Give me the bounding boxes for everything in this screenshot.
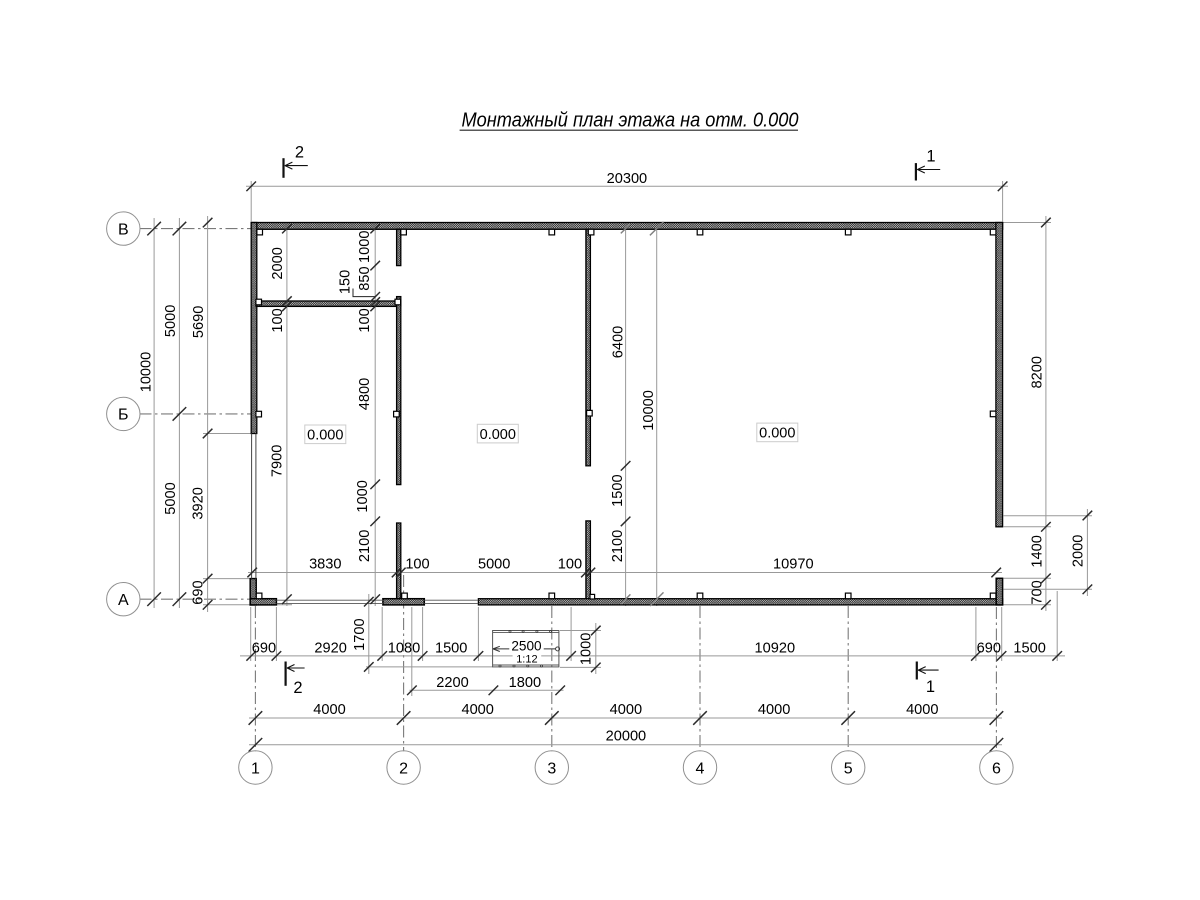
svg-text:5: 5	[844, 760, 853, 777]
svg-text:1:12: 1:12	[516, 653, 537, 665]
svg-text:1500: 1500	[610, 474, 626, 506]
svg-text:10970: 10970	[773, 556, 814, 572]
svg-text:5000: 5000	[163, 305, 179, 337]
svg-text:3830: 3830	[309, 556, 341, 572]
svg-text:1000: 1000	[357, 230, 373, 262]
svg-text:1000: 1000	[579, 633, 595, 665]
svg-text:690: 690	[252, 640, 276, 656]
svg-text:2000: 2000	[270, 247, 286, 279]
svg-text:3920: 3920	[190, 487, 206, 519]
svg-text:4000: 4000	[906, 702, 938, 718]
svg-text:2000: 2000	[1071, 535, 1087, 567]
svg-text:А: А	[118, 592, 129, 609]
svg-text:1000: 1000	[355, 480, 371, 512]
svg-text:4000: 4000	[610, 702, 642, 718]
svg-text:2: 2	[399, 760, 408, 777]
svg-text:10000: 10000	[641, 390, 657, 431]
svg-text:1080: 1080	[388, 640, 420, 656]
svg-text:8200: 8200	[1030, 356, 1046, 388]
svg-text:1800: 1800	[509, 675, 541, 691]
svg-text:3: 3	[547, 760, 556, 777]
svg-text:4000: 4000	[758, 702, 790, 718]
svg-text:Б: Б	[118, 407, 129, 424]
svg-text:1: 1	[926, 147, 935, 165]
svg-text:7900: 7900	[269, 445, 285, 477]
svg-text:2920: 2920	[314, 640, 346, 656]
svg-text:100: 100	[405, 556, 429, 572]
svg-text:В: В	[118, 221, 129, 238]
svg-text:5000: 5000	[163, 482, 179, 514]
svg-text:5000: 5000	[478, 556, 510, 572]
svg-text:20000: 20000	[606, 728, 647, 744]
svg-text:1: 1	[251, 760, 260, 777]
svg-text:20300: 20300	[607, 171, 648, 187]
svg-text:2100: 2100	[610, 530, 626, 562]
svg-text:700: 700	[1029, 580, 1045, 604]
svg-text:100: 100	[357, 308, 373, 332]
svg-text:0.000: 0.000	[480, 427, 516, 443]
svg-text:2: 2	[293, 679, 302, 697]
svg-text:850: 850	[357, 266, 373, 290]
svg-text:2100: 2100	[357, 530, 373, 562]
svg-text:0.000: 0.000	[759, 426, 795, 442]
svg-text:2500: 2500	[511, 638, 542, 653]
svg-text:4800: 4800	[357, 378, 373, 410]
svg-text:1500: 1500	[1013, 640, 1045, 656]
svg-text:150: 150	[338, 270, 354, 294]
svg-text:100: 100	[558, 556, 582, 572]
svg-text:100: 100	[270, 308, 286, 332]
svg-text:10920: 10920	[755, 640, 796, 656]
svg-text:4: 4	[696, 760, 705, 777]
svg-text:1400: 1400	[1029, 535, 1045, 567]
svg-text:10000: 10000	[138, 352, 154, 393]
svg-text:1700: 1700	[352, 618, 368, 650]
svg-text:4000: 4000	[461, 702, 493, 718]
svg-text:1: 1	[926, 678, 935, 696]
svg-text:1500: 1500	[435, 640, 467, 656]
svg-text:4000: 4000	[313, 702, 345, 718]
svg-text:5690: 5690	[191, 306, 207, 338]
svg-text:2200: 2200	[436, 675, 468, 691]
svg-text:690: 690	[190, 580, 206, 604]
svg-text:Монтажный план этажа на отм. 0: Монтажный план этажа на отм. 0.000	[462, 110, 799, 132]
svg-text:6400: 6400	[611, 326, 627, 358]
svg-text:2: 2	[295, 144, 304, 162]
svg-text:6: 6	[992, 760, 1001, 777]
svg-text:690: 690	[977, 640, 1001, 656]
svg-text:0.000: 0.000	[307, 428, 343, 444]
